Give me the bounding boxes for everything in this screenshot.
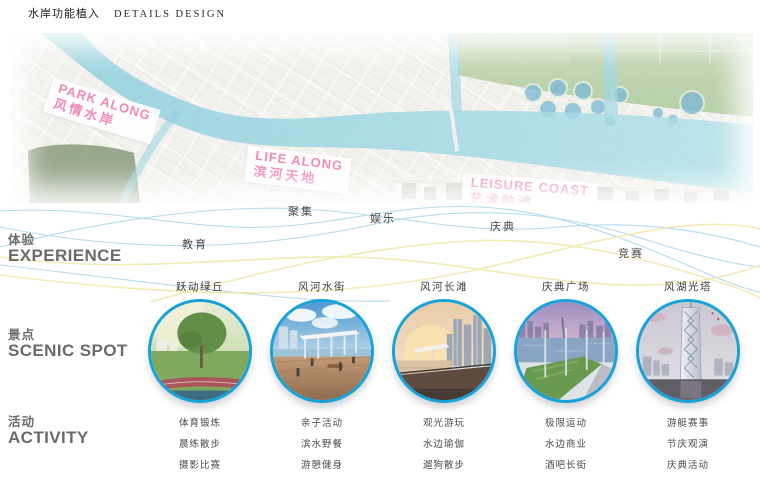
experience-keyword-education: 教育 <box>182 236 208 252</box>
activity-item: 亲子活动 <box>270 414 374 435</box>
experience-heading-en: EXPERIENCE <box>8 247 122 265</box>
activity-item: 滨水野餐 <box>270 435 374 456</box>
presentation-page: 水岸功能植入DETAILS DESIGN <box>0 0 760 502</box>
activity-item: 摄影比赛 <box>148 456 252 477</box>
activity-item: 观光游玩 <box>392 414 496 435</box>
activity-list-water-street: 亲子活动 滨水野餐 游憩健身 <box>270 414 374 477</box>
activity-item: 水边瑜伽 <box>392 435 496 456</box>
page-title: 水岸功能植入DETAILS DESIGN <box>28 5 226 21</box>
spot-label: 风河水街 <box>270 279 374 294</box>
spot-label: 风河长滩 <box>392 279 496 294</box>
activity-list-long-beach: 观光游玩 水边瑜伽 遛狗散步 <box>392 414 496 477</box>
experience-heading: 体验 EXPERIENCE <box>8 234 122 265</box>
spot-photo-water-street <box>270 299 374 403</box>
activity-item: 晨练散步 <box>148 435 252 456</box>
spot-label: 风湖光塔 <box>636 279 740 294</box>
activity-item: 极限运动 <box>514 414 618 435</box>
spot-photo-light-tower <box>636 299 740 403</box>
activity-item: 酒吧长街 <box>514 456 618 477</box>
experience-keyword-recreation: 娱乐 <box>370 210 396 226</box>
activity-item: 水边商业 <box>514 435 618 456</box>
spot-photo-long-beach <box>392 299 496 403</box>
experience-keyword-gathering: 聚集 <box>288 203 314 219</box>
experience-keyword-competition: 竞赛 <box>618 245 644 261</box>
activity-item: 游憩健身 <box>270 456 374 477</box>
spot-label: 跃动绿丘 <box>148 279 252 294</box>
scenic-spot-heading: 景点 SCENIC SPOT <box>8 329 128 360</box>
page-title-cn: 水岸功能植入 <box>28 8 100 20</box>
activity-list-green-hill: 体育锻炼 晨练散步 摄影比赛 <box>148 414 252 477</box>
activity-list-light-tower: 游艇赛事 节庆观演 庆典活动 <box>636 414 740 477</box>
activity-list-celebration-plaza: 极限运动 水边商业 酒吧长街 <box>514 414 618 477</box>
masterplan-aerial-render: PARK ALONG 风情水岸 LIFE ALONG 滨河天地 LEISURE … <box>10 33 753 203</box>
spot-photo-green-hill <box>148 299 252 403</box>
activity-heading: 活动 ACTIVITY <box>8 416 89 447</box>
spot-label: 庆典广场 <box>514 279 618 294</box>
activity-item: 庆典活动 <box>636 456 740 477</box>
activity-item: 节庆观演 <box>636 435 740 456</box>
activity-item: 体育锻炼 <box>148 414 252 435</box>
activity-item: 遛狗散步 <box>392 456 496 477</box>
spot-photo-celebration-plaza <box>514 299 618 403</box>
experience-keyword-celebration: 庆典 <box>490 218 516 234</box>
scenic-heading-en: SCENIC SPOT <box>8 342 128 360</box>
activity-item: 游艇赛事 <box>636 414 740 435</box>
activity-heading-en: ACTIVITY <box>8 429 89 447</box>
page-title-en: DETAILS DESIGN <box>114 9 226 20</box>
